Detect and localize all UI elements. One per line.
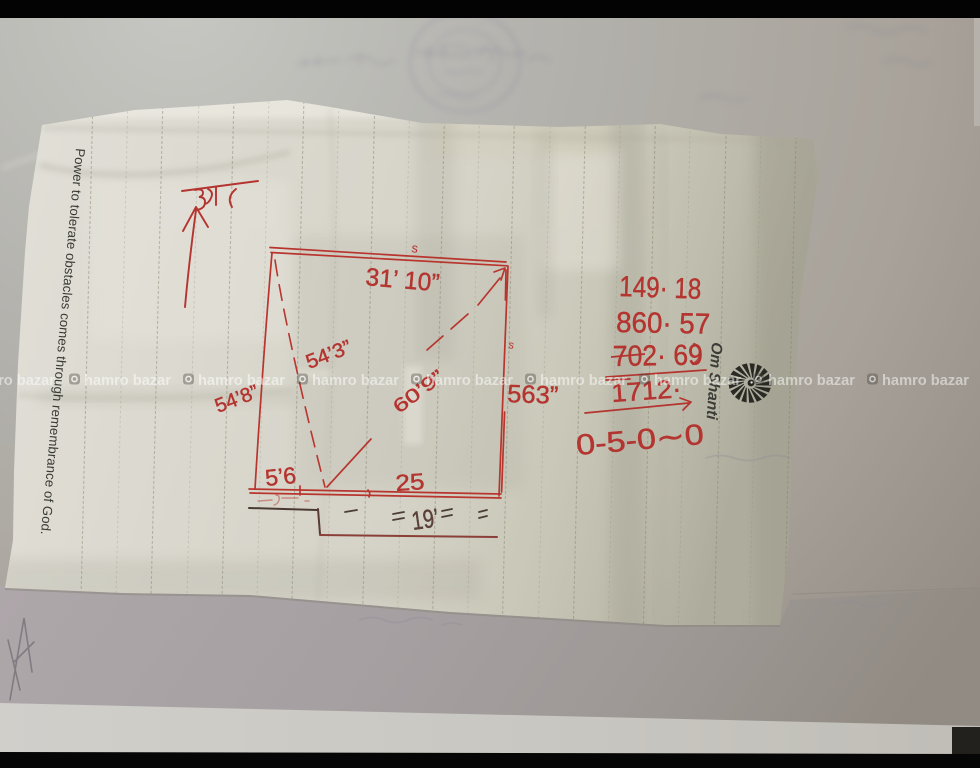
svg-text:5’6: 5’6 [264,462,298,491]
svg-text:19’: 19’ [410,502,441,535]
svg-text:hamro bazar: hamro bazar [540,372,627,389]
svg-text:hamro bazar: hamro bazar [882,372,969,389]
svg-text:hamro bazar: hamro bazar [312,372,399,389]
svg-text:860· 57: 860· 57 [616,307,711,341]
svg-text:hamro bazar: hamro bazar [198,372,285,389]
svg-text:hamro bazar: hamro bazar [84,372,171,389]
svg-text:hamro bazar: hamro bazar [768,372,855,389]
svg-text:25: 25 [395,468,426,496]
svg-text:hamro bazar: hamro bazar [426,372,513,389]
svg-text:hamro bazar: hamro bazar [654,372,741,389]
svg-text:hamro bazar: hamro bazar [0,372,55,389]
svg-text:149· 18: 149· 18 [619,271,702,306]
